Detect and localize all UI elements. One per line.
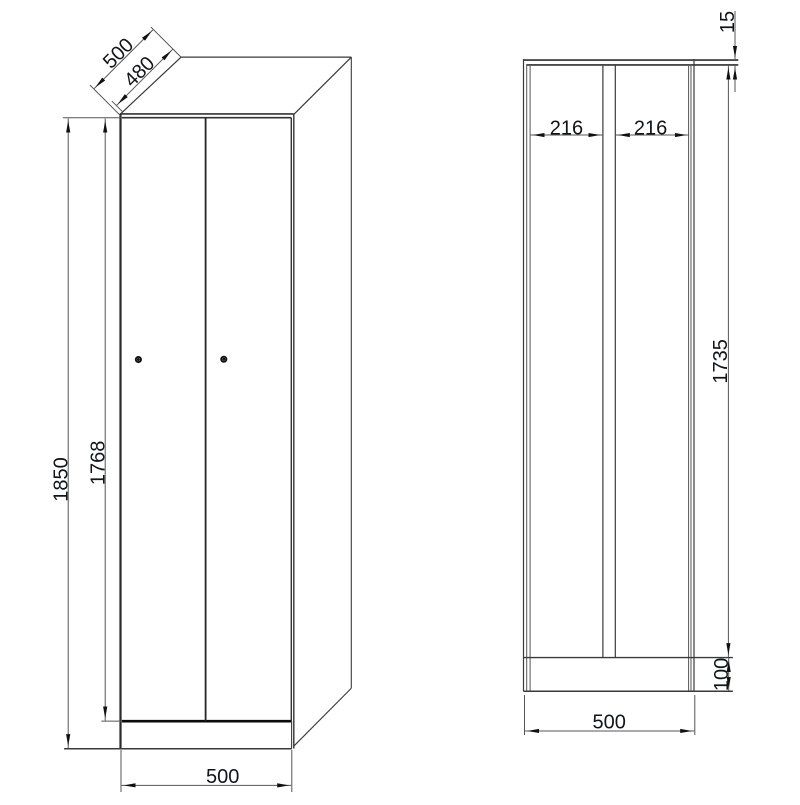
svg-text:100: 100 [711, 658, 733, 691]
svg-text:1850: 1850 [51, 457, 73, 502]
svg-text:1735: 1735 [710, 339, 732, 384]
svg-text:500: 500 [206, 766, 239, 788]
svg-text:216: 216 [634, 118, 667, 140]
svg-text:500: 500 [593, 712, 626, 734]
svg-text:1768: 1768 [88, 441, 110, 486]
svg-text:15: 15 [717, 11, 739, 33]
svg-text:216: 216 [550, 118, 583, 140]
